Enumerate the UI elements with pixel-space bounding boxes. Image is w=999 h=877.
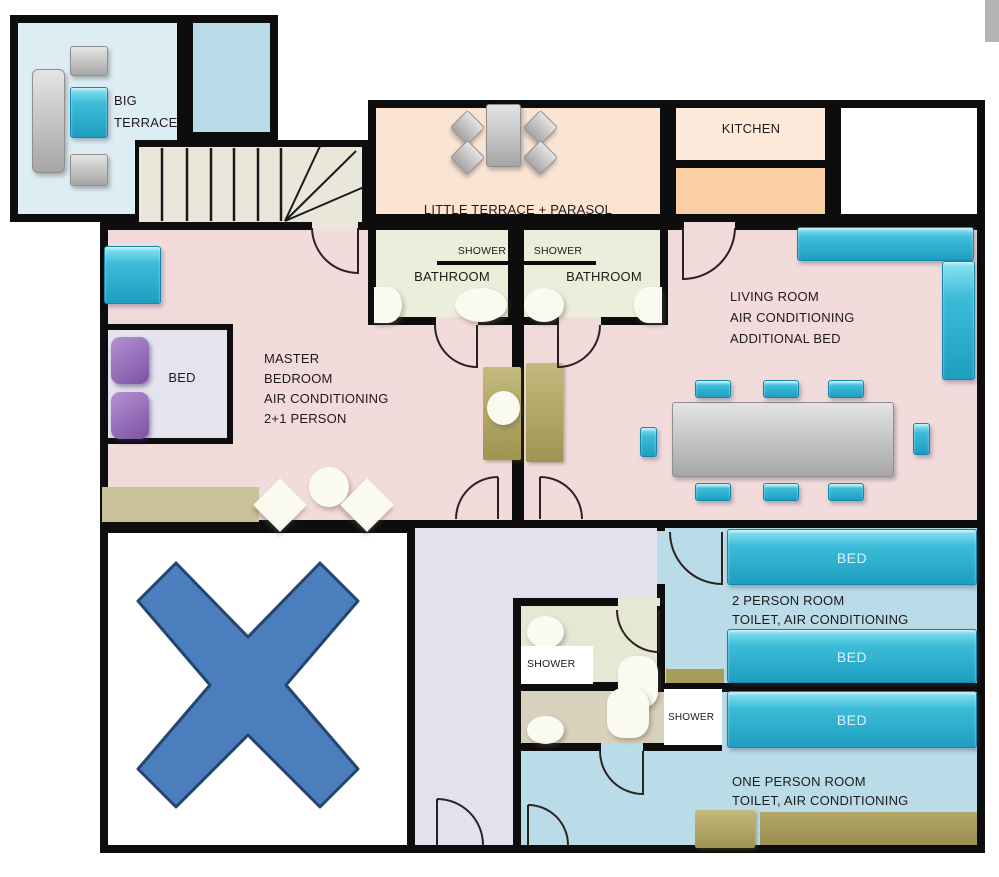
master-pillow-2 <box>111 392 149 439</box>
room-label-little-terrace: LITTLE TERRACE + PARASOL <box>378 203 658 216</box>
room-label-master-4: 2+1 PERSON <box>264 412 347 425</box>
dining-chair-top-1 <box>695 380 731 398</box>
bed-one-person: BED <box>727 691 977 748</box>
dining-chair-right <box>913 423 930 455</box>
master-dresser <box>102 487 259 522</box>
dining-chair-top-2 <box>763 380 799 398</box>
wall-plan-bottom <box>100 845 985 853</box>
master-ac-unit <box>104 246 161 304</box>
lounge-chair <box>32 69 65 173</box>
room-label-big-terrace-2: TERRACE <box>114 116 178 129</box>
sink-bath-left <box>374 287 402 323</box>
master-pillow-1 <box>111 337 149 384</box>
two-person-cabinet <box>666 669 724 683</box>
toilet-bath-left <box>455 288 507 322</box>
label-master-bed: BED <box>152 371 212 384</box>
room-label-kitchen: KITCHEN <box>676 122 826 135</box>
floor-plan: BIG TERRACE <box>0 0 999 877</box>
door-opening-one-person <box>601 743 643 751</box>
room-label-master-2: BEDROOM <box>264 372 333 385</box>
sink-bath-right <box>634 287 662 323</box>
wardrobe-right <box>526 363 563 462</box>
room-label-living-1: LIVING ROOM <box>730 290 819 303</box>
dining-chair-bottom-1 <box>695 483 731 501</box>
shower-lower-basin <box>527 716 564 744</box>
door-opening-shower-upper <box>618 598 660 606</box>
shower-divider-left <box>437 261 518 265</box>
wall-one-person-left <box>513 743 521 853</box>
room-label-one-person-1: ONE PERSON ROOM <box>732 775 866 788</box>
room-label-master-1: MASTER <box>264 352 319 365</box>
room-label-living-2: AIR CONDITIONING <box>730 311 855 324</box>
room-label-bathroom-right: BATHROOM <box>534 270 674 283</box>
scrollbar-thumb[interactable] <box>985 0 999 42</box>
door-opening-bath-right <box>559 317 601 325</box>
room-unavailable <box>100 525 415 853</box>
bed-two-person-top: BED <box>727 529 977 585</box>
bed-two-person-bottom: BED <box>727 629 977 683</box>
dining-chair-top-3 <box>828 380 864 398</box>
sofa-vertical <box>942 261 975 380</box>
room-label-big-terrace-1: BIG <box>114 94 137 107</box>
terrace-chair-top <box>70 46 108 76</box>
room-label-two-person-2: TOILET, AIR CONDITIONING <box>732 613 908 626</box>
one-person-nightstand <box>695 810 755 848</box>
room-small-blue <box>185 15 278 140</box>
wall-plan-right <box>977 525 985 853</box>
wardrobe-knob <box>487 391 520 425</box>
toilet-bath-right <box>524 288 564 322</box>
one-person-room-floor-bottom <box>521 751 722 845</box>
room-label-one-person-2: TOILET, AIR CONDITIONING <box>732 794 908 807</box>
shower-lower-toilet <box>607 688 649 738</box>
sofa-horizontal <box>797 227 974 261</box>
one-person-wardrobe <box>760 812 977 845</box>
room-label-master-3: AIR CONDITIONING <box>264 392 389 405</box>
dining-chair-bottom-2 <box>763 483 799 501</box>
label-shower-bath-left: SHOWER <box>442 246 522 257</box>
shower-divider-right <box>522 261 596 265</box>
parasol-table <box>486 104 521 167</box>
dining-table <box>672 402 894 477</box>
room-label-bathroom-left: BATHROOM <box>382 270 522 283</box>
terrace-chair-bottom <box>70 154 108 186</box>
room-label-living-3: ADDITIONAL BED <box>730 332 841 345</box>
door-opening-living <box>684 222 735 230</box>
label-shower-upper: SHOWER <box>527 659 575 670</box>
shower-upper-basin <box>527 616 564 648</box>
room-white-storage <box>833 100 985 222</box>
kitchen-counter <box>668 160 833 222</box>
label-shower-bath-right: SHOWER <box>518 246 598 257</box>
door-opening-two-person <box>657 531 665 584</box>
terrace-table <box>70 87 108 138</box>
dining-chair-bottom-3 <box>828 483 864 501</box>
dining-chair-left <box>640 427 657 457</box>
staircase <box>135 140 368 225</box>
label-shower-lower: SHOWER <box>668 713 714 723</box>
room-label-two-person-1: 2 PERSON ROOM <box>732 594 844 607</box>
door-opening-stairs <box>312 222 358 230</box>
